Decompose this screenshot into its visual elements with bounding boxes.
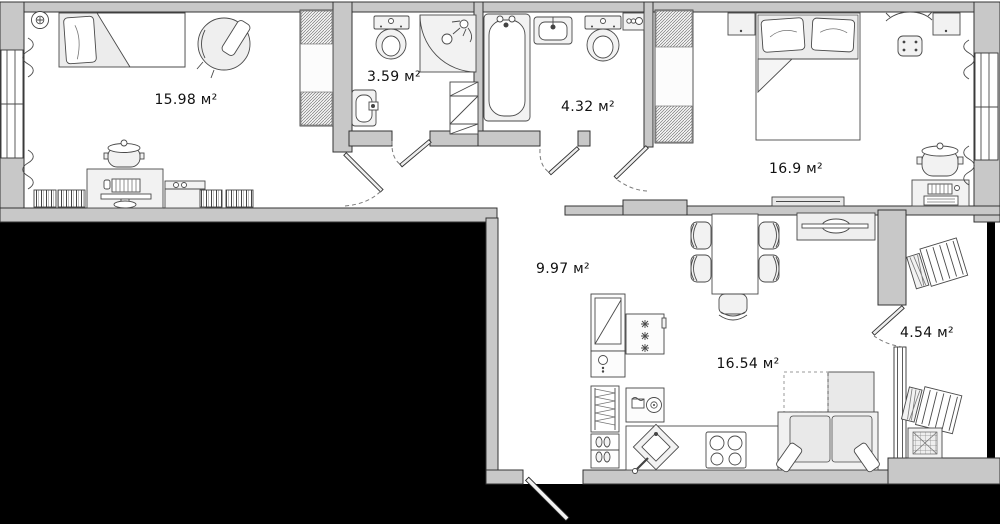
sofa-icon [775, 372, 880, 473]
wall-bath-bottom [349, 131, 392, 146]
window [894, 347, 906, 458]
window [975, 53, 998, 160]
wall-balcony-bottom [888, 458, 1000, 484]
wall-hall-left [486, 218, 498, 474]
door-leaf [614, 146, 648, 179]
bookshelf-icon [34, 190, 85, 207]
storage-box-icon [908, 428, 942, 458]
wall-bedroom1-bath [333, 2, 352, 152]
chaise-icon [828, 372, 874, 414]
room-label-bedroom-2: 16.9 м² [769, 161, 823, 177]
wall-balcony-divider [878, 210, 906, 305]
desk-chair-icon [104, 140, 144, 167]
wall-bath-bottom [478, 131, 540, 146]
chair-icon [691, 255, 711, 282]
bedroom-1-furniture [23, 10, 333, 208]
chair-icon [691, 222, 711, 249]
stove-icon [706, 432, 746, 468]
wall-bath-bottom [578, 131, 590, 146]
door-leaf [400, 140, 431, 167]
room-label-bedroom-1: 15.98 м² [154, 92, 217, 108]
tv-icon [772, 197, 844, 206]
wardrobe-icon [300, 10, 333, 126]
smoke-detector-icon [32, 12, 49, 29]
valet-stand-icon [886, 12, 932, 21]
door-swing-arc [345, 191, 381, 206]
optional-chaise-outline [784, 372, 828, 412]
sink-icon [352, 90, 378, 126]
radiator-icon [591, 386, 619, 432]
bedroom-2-door [614, 146, 648, 191]
wall-kitchen-bottom [583, 470, 892, 484]
bedroom-1-door [344, 153, 383, 206]
bookshelf-icon [200, 190, 253, 207]
chair-icon [759, 255, 779, 282]
side-table-icon [165, 181, 205, 208]
room-label-balcony: 4.54 м² [900, 325, 954, 341]
duct-shaft-icon [450, 82, 478, 134]
room-label-bathroom-small: 3.59 м² [367, 69, 421, 85]
wall-top [0, 2, 1000, 12]
shower-head-icon [460, 20, 468, 28]
washing-machine-icon [626, 388, 664, 422]
wardrobe-icon [655, 10, 693, 143]
toilet-icon [374, 16, 409, 59]
floor-plan-drawing [0, 0, 1000, 524]
door-swing-arc [615, 178, 647, 191]
wall-bottom-left [0, 208, 497, 222]
tv-stand-icon [797, 213, 875, 240]
curtain-icon [964, 40, 975, 79]
armchair-icon [197, 18, 251, 78]
wall-bath-bedroom2 [644, 2, 653, 147]
wall-kitchen-bottom [486, 470, 523, 484]
kitchen-living-furniture [591, 213, 881, 474]
room-label-hallway: 9.97 м² [536, 261, 590, 277]
towel-rail-icon [623, 13, 644, 30]
bathtub-icon [484, 14, 530, 121]
toilet-icon [585, 16, 621, 61]
freezer-icon [626, 314, 666, 354]
deck-chair-icon [901, 383, 962, 434]
shoe-rack-icon [591, 434, 619, 468]
wall-kitchen-top-block [623, 200, 687, 215]
chair-icon [719, 294, 747, 320]
monitor-icon [101, 194, 151, 199]
floor-plan: 15.98 м² 3.59 м² 4.32 м² 16.9 м² 9.97 м²… [0, 0, 1000, 524]
stool-icon [898, 36, 922, 56]
sink-icon [534, 17, 572, 44]
shower-icon [420, 15, 476, 72]
desk-icon [912, 180, 969, 206]
bathroom-small-door [392, 140, 431, 167]
balcony-furniture [901, 238, 968, 458]
window [1, 50, 23, 158]
door-swing-arc [540, 149, 550, 173]
door-leaf [344, 153, 383, 192]
bathroom-large-door [540, 147, 579, 175]
fridge-icon [591, 294, 625, 377]
desk-icon [87, 169, 163, 208]
door-leaf [549, 147, 580, 175]
door-swing-arc [392, 141, 401, 165]
double-bed-icon [756, 13, 860, 140]
single-bed-icon [59, 13, 185, 67]
room-label-kitchen-living: 16.54 м² [716, 356, 779, 372]
curtain-icon [964, 146, 975, 185]
desk-chair-icon [917, 143, 963, 176]
door-swing-arc [874, 336, 903, 347]
room-label-bathroom-large: 4.32 м² [561, 99, 615, 115]
dining-table-icon [712, 214, 758, 294]
deck-chair-icon [906, 238, 968, 291]
chair-icon [759, 222, 779, 249]
